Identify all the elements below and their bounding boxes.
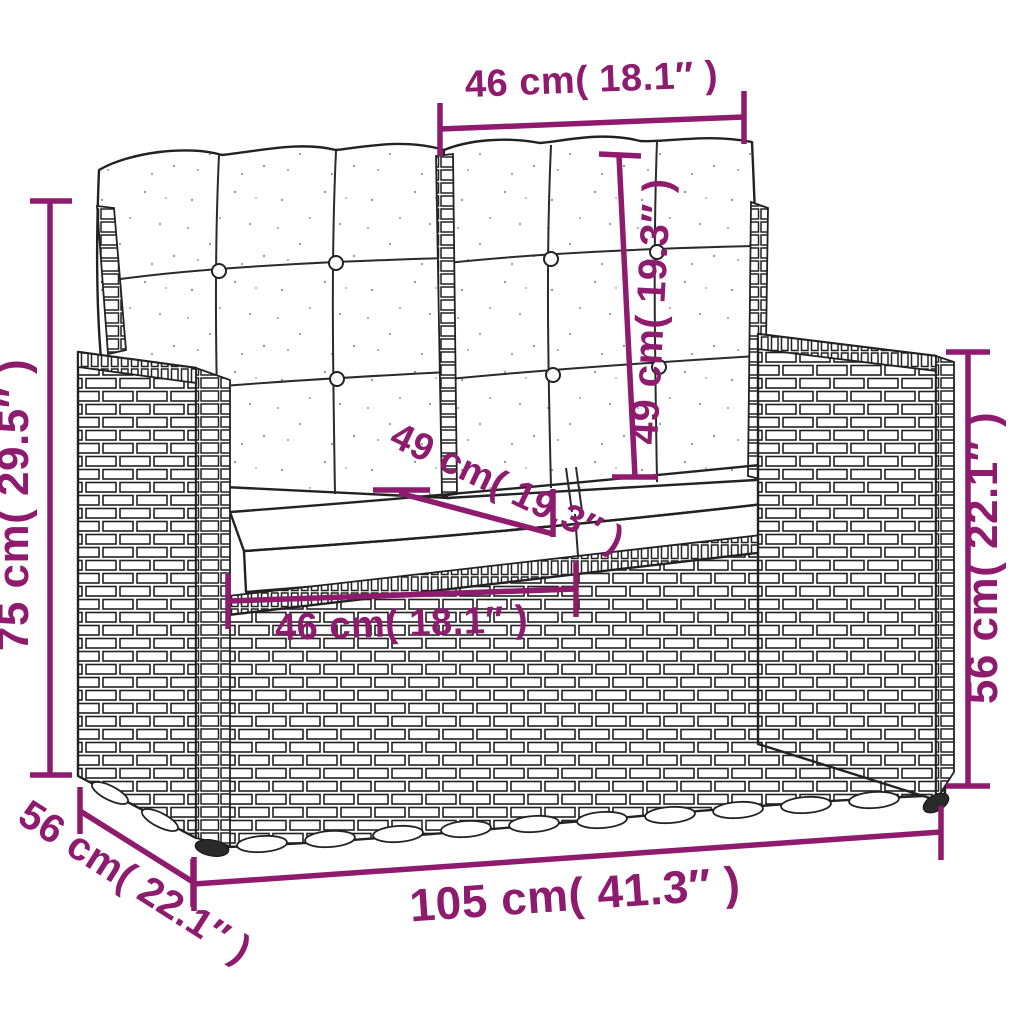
product-dimension-diagram: 46 cm( 18.1″ ) 49 cm( 19.3″ ) 75 cm( 29.… (0, 0, 1024, 1024)
bench-line-art: 46 cm( 18.1″ ) 49 cm( 19.3″ ) 75 cm( 29.… (0, 0, 1024, 1024)
dim-overall-height: 75 cm( 29.5″ ) (0, 201, 72, 775)
dim-armrest-height-label: 56 cm( 22.1″ ) (958, 412, 1007, 704)
dim-back-cushion-width-label: 46 cm( 18.1″ ) (464, 54, 719, 106)
armrest-right (758, 334, 954, 817)
back-cushion-right (436, 137, 768, 498)
dim-seat-width-label: 46 cm( 18.1″ ) (274, 599, 529, 650)
dim-armrest-height: 56 cm( 22.1″ ) (946, 352, 1007, 786)
dim-overall-height-label: 75 cm( 29.5″ ) (0, 359, 38, 651)
armrest-left (78, 352, 230, 859)
